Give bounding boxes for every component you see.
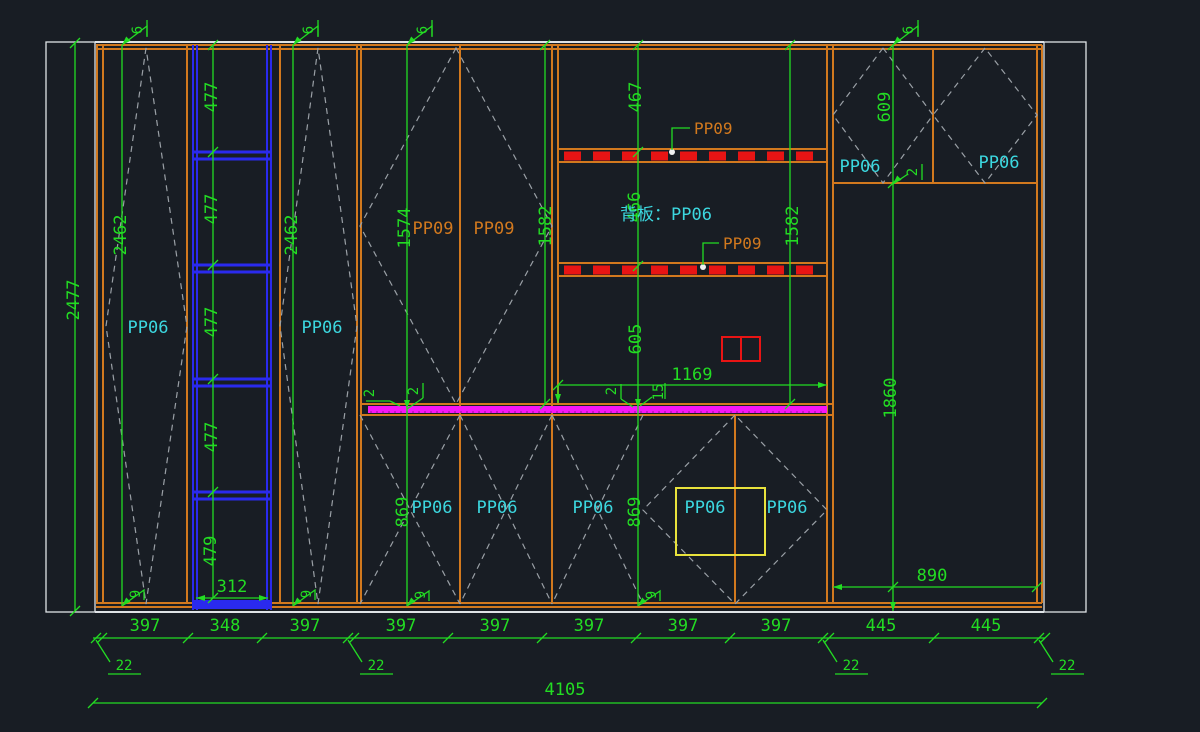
dim-22-3: 22 <box>843 658 860 674</box>
dim-gap-15: 15 <box>651 384 667 401</box>
dim-6-3: 6 <box>415 26 431 34</box>
panel-label-pp06-left-1: PP06 <box>128 318 169 338</box>
cabinet-frame <box>96 45 1042 607</box>
dim-lower-869b: 869 <box>625 497 645 528</box>
dim-ladder-1: 477 <box>202 82 222 113</box>
dim-22-4: 22 <box>1059 658 1076 674</box>
dim-left-inner-2: 2462 <box>282 215 302 256</box>
panel-label-pp09-2: PP09 <box>474 219 515 239</box>
dim-2-3: 2 <box>604 387 620 395</box>
panel-label-pp06-right-2: PP06 <box>979 153 1020 173</box>
dim-6-1: 6 <box>130 26 146 34</box>
dim-back-467: 467 <box>626 82 646 113</box>
panel-diagonals <box>106 48 1037 604</box>
dim-right-890: 890 <box>917 566 948 586</box>
dim-ladder-2: 477 <box>202 194 222 225</box>
panel-label-pp09-1: PP09 <box>413 219 454 239</box>
dimension-arrows <box>122 37 902 612</box>
dim-row-3: 397 <box>290 616 321 636</box>
dim-row-2: 348 <box>210 616 241 636</box>
dim-right-1860: 1860 <box>881 378 901 419</box>
dim-overall: 4105 <box>545 680 586 700</box>
panel-label-pp06-bottom-2: PP06 <box>477 498 518 518</box>
dim-9-2: 9 <box>299 590 315 598</box>
panel-labels: PP06 PP06 PP09 PP09 背板：PP06 PP09 PP09 PP… <box>128 119 1020 518</box>
dim-back-605: 605 <box>626 324 646 355</box>
panel-label-pp06-left-2: PP06 <box>302 318 343 338</box>
dim-22-2: 22 <box>368 658 385 674</box>
callout-label-pp09-mid: PP09 <box>723 234 762 253</box>
dim-9-1: 9 <box>128 590 144 598</box>
backboard-label: 背板：PP06 <box>620 205 712 225</box>
dim-ladder-width: 312 <box>217 577 248 597</box>
dim-upper-1582a: 1582 <box>536 206 556 247</box>
dim-row-1: 397 <box>130 616 161 636</box>
dim-upper-1582b: 1582 <box>783 206 803 247</box>
panel-label-pp06-bottom-3: PP06 <box>573 498 614 518</box>
left-wall <box>46 42 95 612</box>
callout-label-pp09-top: PP09 <box>694 119 733 138</box>
right-wall <box>1044 42 1086 612</box>
dim-right-609: 609 <box>875 92 895 123</box>
cad-viewport[interactable]: 2477 2462 2462 477 477 477 477 479 312 1… <box>0 0 1200 732</box>
dim-row-8: 397 <box>761 616 792 636</box>
dim-2-1: 2 <box>362 389 378 397</box>
dimension-texts: 2477 2462 2462 477 477 477 477 479 312 1… <box>64 26 1075 700</box>
dim-row-9: 445 <box>866 616 897 636</box>
panel-label-pp06-bottom-4: PP06 <box>685 498 726 518</box>
dim-left-outer: 2477 <box>64 280 84 321</box>
red-detail-box <box>722 337 760 361</box>
dim-9-4: 9 <box>644 591 660 599</box>
dim-row-7: 397 <box>668 616 699 636</box>
magenta-shelf <box>368 410 827 413</box>
dim-row-10: 445 <box>971 616 1002 636</box>
panel-label-pp06-right-1: PP06 <box>840 157 881 177</box>
dim-6-2: 6 <box>301 26 317 34</box>
dim-22-1: 22 <box>116 658 133 674</box>
panel-label-pp06-bottom-1: PP06 <box>412 498 453 518</box>
panel-label-pp06-bottom-5: PP06 <box>767 498 808 518</box>
cad-drawing: 2477 2462 2462 477 477 477 477 479 312 1… <box>0 0 1200 732</box>
dim-9-3: 9 <box>413 591 429 599</box>
dim-ladder-5: 479 <box>201 536 221 567</box>
dim-back-width: 1169 <box>672 365 713 385</box>
dim-ladder-4: 477 <box>202 422 222 453</box>
dim-row-5: 397 <box>480 616 511 636</box>
dim-2-2: 2 <box>406 387 422 395</box>
wall-boundary <box>95 42 1044 612</box>
dim-lower-869a: 869 <box>393 497 413 528</box>
dim-2-4: 2 <box>905 168 921 176</box>
dim-6-4: 6 <box>901 26 917 34</box>
dim-row-4: 397 <box>386 616 417 636</box>
dim-row-6: 397 <box>574 616 605 636</box>
dim-left-inner-1: 2462 <box>111 215 131 256</box>
dim-ladder-3: 477 <box>202 307 222 338</box>
